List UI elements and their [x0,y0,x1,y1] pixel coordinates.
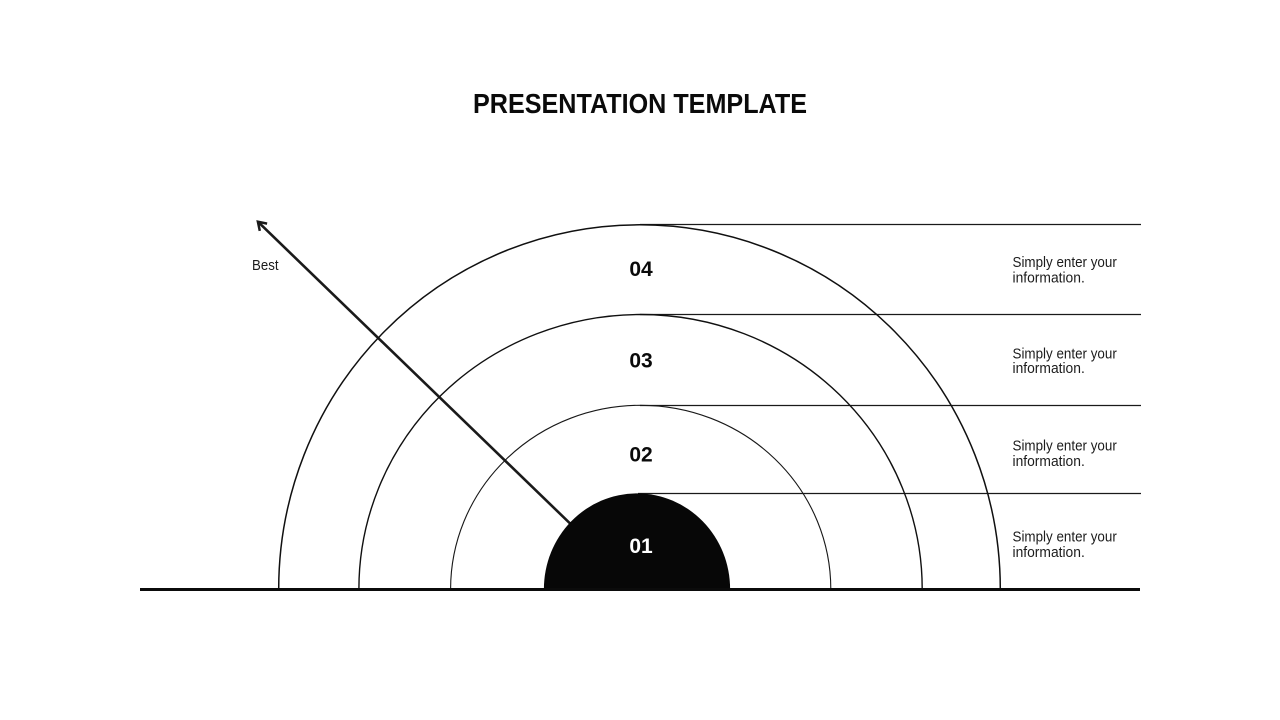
svg-text:information.: information. [1013,544,1085,561]
svg-text:04: 04 [629,258,653,281]
svg-text:03: 03 [629,350,652,373]
svg-text:PRESENTATION TEMPLATE: PRESENTATION TEMPLATE [473,88,807,119]
svg-text:02: 02 [629,443,652,466]
svg-text:information.: information. [1013,360,1085,377]
svg-text:01: 01 [629,535,653,558]
svg-text:information.: information. [1013,270,1085,287]
svg-text:information.: information. [1013,453,1085,470]
svg-text:Best: Best [252,257,279,274]
